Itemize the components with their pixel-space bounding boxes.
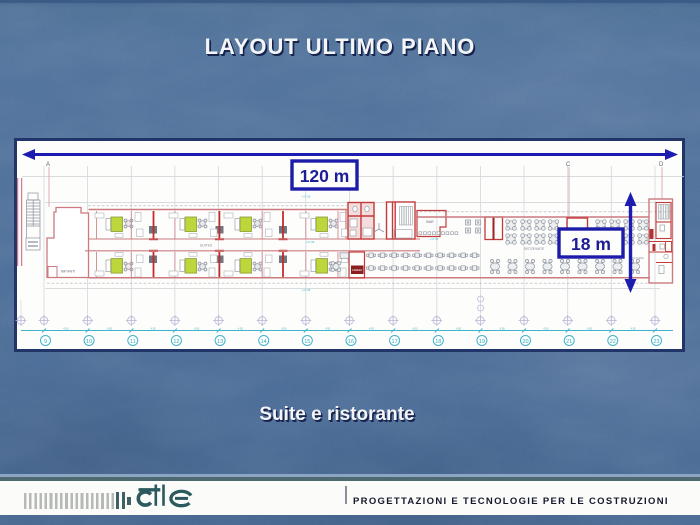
svg-text:IMPIANTI: IMPIANTI (61, 270, 76, 274)
svg-text:4.50: 4.50 (587, 326, 593, 330)
svg-text:CAMERA: CAMERA (352, 269, 363, 272)
svg-text:+17.05: +17.05 (306, 240, 315, 244)
svg-text:120 m: 120 m (300, 166, 350, 186)
svg-text:12: 12 (173, 339, 179, 345)
svg-text:17: 17 (392, 339, 398, 345)
svg-text:4.50: 4.50 (63, 326, 69, 330)
svg-text:21: 21 (566, 339, 572, 345)
svg-text:+17.05: +17.05 (302, 288, 311, 292)
svg-text:19: 19 (479, 339, 485, 345)
svg-text:4.50: 4.50 (631, 326, 637, 330)
svg-text:BAR: BAR (426, 220, 434, 224)
svg-text:4.50: 4.50 (456, 326, 462, 330)
svg-text:20: 20 (522, 339, 528, 345)
svg-text:CUCINA: CUCINA (632, 256, 644, 260)
svg-text:SUITES: SUITES (200, 244, 213, 248)
svg-text:23: 23 (653, 339, 659, 345)
svg-text:4.50: 4.50 (238, 326, 244, 330)
svg-text:+17.05: +17.05 (430, 237, 439, 241)
svg-text:4.50: 4.50 (500, 326, 506, 330)
svg-text:4.50: 4.50 (325, 326, 331, 330)
svg-text:4.50: 4.50 (151, 326, 157, 330)
svg-text:18: 18 (435, 339, 441, 345)
svg-text:22: 22 (610, 339, 616, 345)
svg-text:18 m: 18 m (571, 234, 611, 254)
svg-text:D: D (659, 162, 664, 168)
svg-text:14: 14 (261, 339, 267, 345)
svg-text:4.50: 4.50 (412, 326, 418, 330)
svg-text:4.50: 4.50 (107, 326, 113, 330)
svg-text:10: 10 (86, 339, 92, 345)
svg-text:15: 15 (304, 339, 310, 345)
svg-text:4.50: 4.50 (369, 326, 375, 330)
svg-text:4.50: 4.50 (281, 326, 287, 330)
svg-text:A: A (46, 162, 50, 168)
svg-text:4.50: 4.50 (543, 326, 549, 330)
svg-text:13: 13 (217, 339, 223, 345)
svg-text:+17.05: +17.05 (302, 195, 311, 199)
svg-text:9: 9 (44, 339, 47, 345)
svg-text:C: C (566, 162, 571, 168)
svg-text:RISTORANTE: RISTORANTE (524, 247, 545, 251)
svg-text:4.50: 4.50 (194, 326, 200, 330)
svg-text:11: 11 (130, 339, 136, 345)
svg-text:16: 16 (348, 339, 354, 345)
